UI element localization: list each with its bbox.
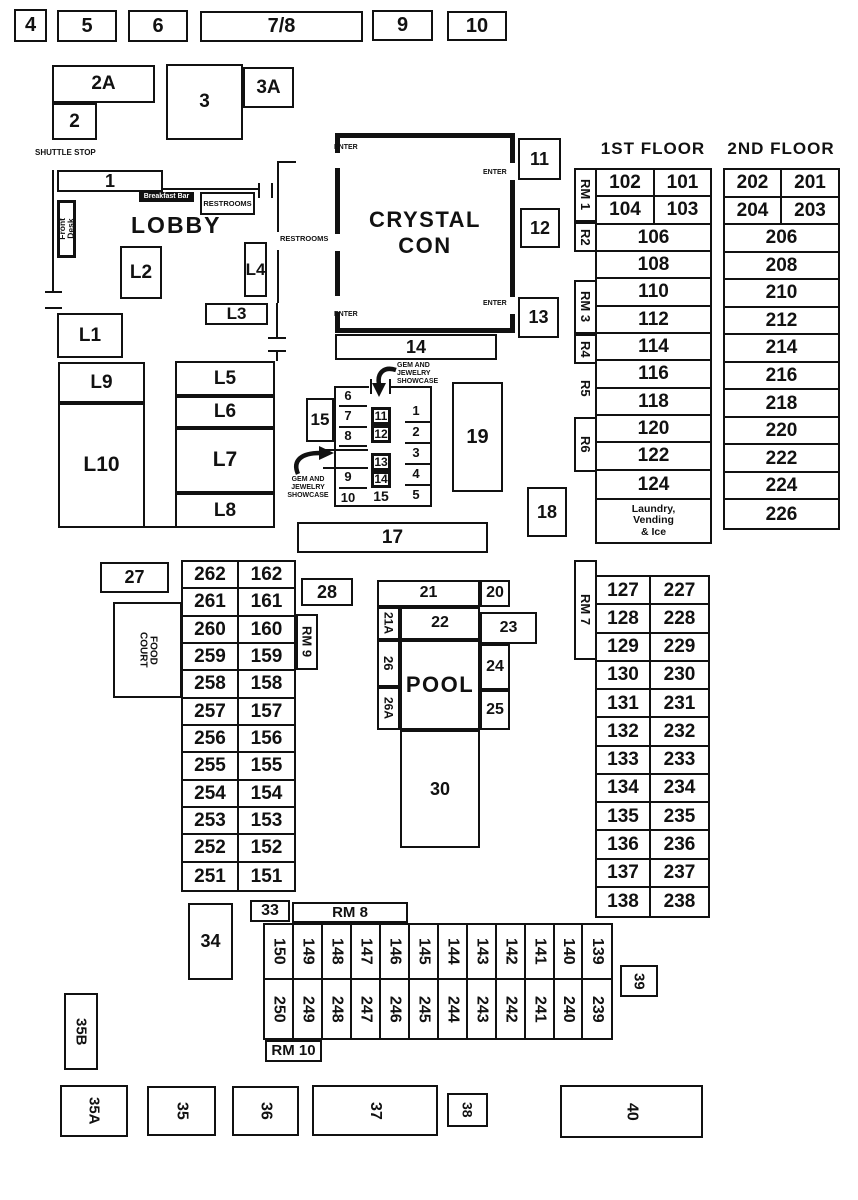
door-gap-cc-left-3 [331,296,340,312]
rooms-250s-150s-cell-258-label: 258 [194,674,226,693]
r2-label-label: R2 [579,229,592,246]
rooms-250s-150s-cell-159-label: 159 [251,647,283,666]
pool-21-label: 21 [420,585,438,602]
rooms-250s-150s-row-8: 254154 [183,781,294,808]
rm7-rooms-cell-136: 136 [597,831,651,857]
floor1-rooms-row-11: 124 [597,471,710,498]
floor2-rooms-cell-220-label: 220 [766,421,798,440]
booth-18-label: 18 [537,503,557,522]
r5-label: R5 [574,366,597,410]
rm8-rm10-rooms-cell-241: 241 [526,980,555,1038]
floor1-rooms-row-1: 104103 [597,197,710,224]
rm8-rm10-rooms-cell-141-label: 141 [532,938,548,965]
door-gap-cc-right-1 [508,163,517,180]
rm7-rooms-cell-230-label: 230 [664,665,696,684]
rm7-rooms-cell-128-label: 128 [607,609,639,628]
rm8-label: RM 8 [292,902,408,923]
pool-21a: 21A [377,607,400,640]
restrooms-corridor: RESTROOMS [280,235,328,244]
lounge-l3-label: L3 [227,305,247,323]
rooms-250s-150s-cell-262: 262 [183,562,239,587]
booth-40-label: 40 [624,1103,640,1121]
rooms-250s-150s-cell-260: 260 [183,617,239,642]
r5-label-label: R5 [579,380,592,397]
pool-26: 26 [377,640,400,687]
booth-19: 19 [452,382,503,492]
booth-10-label: 10 [466,16,488,37]
floor1-rooms-cell-110: 110 [597,279,710,304]
door-jamb-lobby-1 [258,183,260,198]
floor1-rooms-cell-104-label: 104 [609,200,641,219]
lounge-l4-label: L4 [246,261,266,279]
booth-36: 36 [232,1086,299,1136]
food-court: FOOD COURT [113,602,182,698]
booth-12: 12 [520,208,560,248]
rm7-rooms-cell-231: 231 [651,690,708,716]
wall-lounge-bottom [145,526,176,528]
rm8-rm10-rooms-cell-146-label: 146 [387,938,403,965]
rm7-label: RM 7 [574,560,597,660]
booth-2-label: 2 [69,112,80,132]
booth-12-label: 12 [530,219,550,238]
rm8-rm10-rooms-cell-147: 147 [352,925,381,978]
floor2-rooms-cell-224-label: 224 [766,476,798,495]
rm8-rm10-rooms-cell-150-label: 150 [271,938,287,965]
floor2-rooms-cell-218: 218 [725,390,838,416]
floor1-rooms-cell-103: 103 [655,197,710,222]
rm9-label-label: RM 9 [301,626,314,657]
booth-15-left-label: 15 [311,411,330,429]
r4-label-label: R4 [579,341,592,358]
rm1-label-label: RM 1 [579,179,592,210]
r6-label-label: R6 [579,436,592,453]
booth-6: 6 [128,10,188,42]
pool-23-label: 23 [500,620,518,637]
booth-37-label: 37 [367,1102,383,1120]
enter-top-left: ENTER [334,144,358,152]
lobby-label: LOBBY [131,212,222,238]
rm7-rooms-cell-129: 129 [597,634,651,660]
lounge-l7: L7 [175,428,275,493]
wall-lobby-top [163,188,259,190]
pool-20: 20 [480,580,510,607]
door-gap-showcase-top [369,384,391,390]
rm7-rooms-row-4: 131231 [597,690,708,718]
floor2-rooms-row-6: 214 [725,335,838,363]
lounge-l8: L8 [175,493,275,528]
booth-7-8-label: 7/8 [268,16,296,37]
case-box-14-label: 14 [374,473,387,486]
rooms-250s-150s-cell-252-label: 252 [194,838,226,857]
rm8-rm10-rooms-cell-148-label: 148 [329,938,345,965]
rm8-rm10-rooms-cell-246-label: 246 [387,996,403,1023]
booth-3-label: 3 [199,92,210,112]
rm7-rooms-row-1: 128228 [597,605,708,633]
pool-area: POOL [400,640,480,730]
rm7-rooms-cell-137: 137 [597,860,651,886]
floor1-rooms-cell-114: 114 [597,334,710,359]
enter-right-upper: ENTER [483,169,507,177]
rm8-rm10-rooms-cell-144-label: 144 [445,938,461,965]
rm8-rm10-rooms-cell-143-label: 143 [474,938,490,965]
rm7-rooms: 1272271282281292291302301312311322321332… [595,575,710,918]
rm7-rooms-cell-230: 230 [651,662,708,688]
rm8-rm10-rooms-cell-248: 248 [323,980,352,1038]
floor2-rooms-cell-206: 206 [725,225,838,251]
rooms-250s-150s-cell-155: 155 [239,753,294,778]
booth-4: 4 [14,9,47,42]
crystal-con-hall-label: CRYSTAL CON [369,207,481,259]
pool-24: 24 [480,644,510,690]
rm7-rooms-cell-238-label: 238 [664,892,696,911]
floor2-rooms-cell-201-label: 201 [794,173,826,192]
gem-showcase-note-top: GEM AND JEWELRY SHOWCASE [397,362,438,386]
rm7-label-label: RM 7 [579,594,592,625]
case-box-14: 14 [371,471,391,488]
rm8-rm10-rooms-cell-245-label: 245 [416,996,432,1023]
breakfast-bar: Breakfast Bar [139,192,194,202]
rm8-rm10-rooms-cell-250-label: 250 [271,996,287,1023]
floor2-header: 2ND FLOOR [721,139,841,158]
rm8-rm10-rooms-cell-140-label: 140 [560,938,576,965]
floor1-rooms-cell-112: 112 [597,307,710,332]
booth-28: 28 [301,578,353,606]
rooms-250s-150s-cell-252: 252 [183,835,239,860]
rm7-rooms-cell-234-label: 234 [664,778,696,797]
rooms-250s-150s-cell-161-label: 161 [251,592,283,611]
floor2-rooms-cell-220: 220 [725,418,838,444]
booth-19-label: 19 [466,427,488,448]
rm7-rooms-cell-233: 233 [651,747,708,773]
case-line-under-1 [405,421,432,423]
wall-l3-corridor-2 [276,352,278,361]
pool-26-label: 26 [382,656,395,670]
rooms-250s-150s-cell-253: 253 [183,808,239,833]
floor2-rooms-cell-203: 203 [782,198,838,224]
rm7-rooms-cell-227: 227 [651,577,708,603]
rooms-250s-150s-cell-262-label: 262 [194,565,226,584]
rooms-250s-150s-cell-157-label: 157 [251,702,283,721]
floor1-rooms-cell-120-label: 120 [638,419,670,438]
rm7-rooms-cell-229-label: 229 [664,637,696,656]
booth-13: 13 [518,297,559,338]
rooms-250s-150s-cell-255: 255 [183,753,239,778]
rm8-rm10-rooms-cell-147-label: 147 [358,938,374,965]
rm7-rooms-row-6: 133233 [597,747,708,775]
lounge-l3: L3 [205,303,268,325]
door-jamb-showcase-1 [370,379,372,394]
rm7-rooms-cell-237: 237 [651,860,708,886]
floor1-rooms-row-8: 118 [597,389,710,416]
floor2-rooms-cell-216: 216 [725,363,838,389]
rooms-250s-150s-row-0: 262162 [183,562,294,589]
rm7-rooms-cell-129-label: 129 [607,637,639,656]
rm8-rm10-rooms-cell-239: 239 [583,980,611,1038]
case-5: 5 [408,488,424,503]
floor2-rooms-cell-201: 201 [782,170,838,196]
rooms-250s-150s-row-9: 253153 [183,808,294,835]
floor1-rooms-row-9: 120 [597,416,710,443]
breakfast-bar-label: Breakfast Bar [144,193,190,200]
rm7-rooms-cell-228-label: 228 [664,609,696,628]
case-line-under-7 [339,426,367,428]
rm8-rm10-rooms-cell-140: 140 [555,925,583,978]
case-line-under-2 [405,442,432,444]
booth-13-label: 13 [528,308,548,327]
pool-23: 23 [480,612,537,644]
door-gap-cc-left-2 [331,234,340,251]
pool-26a-label: 26A [383,697,395,719]
booth-27: 27 [100,562,169,593]
floor1-rooms-cell-114-label: 114 [638,337,669,356]
rooms-250s-150s-cell-259-label: 259 [194,647,226,666]
floor1-rooms-cell-110-label: 110 [638,282,669,301]
rm8-rm10-rooms-cell-248-label: 248 [329,996,345,1023]
rooms-250s-150s-row-7: 255155 [183,753,294,780]
rooms-250s-150s-cell-259: 259 [183,644,239,669]
case-4: 4 [408,467,424,482]
floor1-rooms-cell-120: 120 [597,416,710,441]
floor2-rooms-cell-216-label: 216 [766,366,798,385]
rm8-rm10-rooms-cell-242-label: 242 [503,996,519,1023]
booth-34-label: 34 [200,932,220,951]
booth-27-label: 27 [124,568,144,587]
pool-26a: 26A [377,687,400,730]
lounge-l9: L9 [58,362,145,403]
floor2-rooms-cell-212-label: 212 [766,311,798,330]
lounge-l9-label: L9 [90,373,112,393]
floor2-rooms-cell-222: 222 [725,445,838,471]
rm8-rm10-rooms-cell-247-label: 247 [358,996,374,1023]
floor1-rooms-cell-101-label: 101 [667,173,699,192]
rm8-rm10-rooms-cell-145: 145 [410,925,439,978]
rm7-rooms-cell-232: 232 [651,718,708,744]
rooms-250s-150s-cell-158: 158 [239,671,294,696]
rooms-250s-150s-cell-256: 256 [183,726,239,751]
booth-5-label: 5 [81,16,92,37]
booth-33-label: 33 [261,903,279,920]
rm7-rooms-cell-238: 238 [651,888,708,916]
floor1-rooms-row-0: 102101 [597,170,710,197]
rm8-rm10-rooms-row-0: 150149148147146145144143142141140139 [265,925,611,980]
floor1-rooms-cell-108-label: 108 [638,255,670,274]
rooms-250s-150s-cell-151-label: 151 [251,867,283,886]
lounge-l1-label: L1 [79,326,101,346]
booth-11-label: 11 [530,150,549,169]
rm8-rm10-rooms-cell-139: 139 [583,925,611,978]
booth-3a: 3A [243,67,294,108]
rooms-250s-150s-cell-257-label: 257 [194,702,226,721]
rooms-250s-150s-cell-160: 160 [239,617,294,642]
rooms-250s-150s-row-4: 258158 [183,671,294,698]
rm7-rooms-cell-236-label: 236 [664,835,696,854]
floor1-rooms-cell-102-label: 102 [609,173,641,192]
door-jamb-l3-1 [268,337,286,339]
floor1-rooms-cell-108: 108 [597,252,710,277]
floor1-rooms-cell-116: 116 [597,361,710,386]
pool-22-label: 22 [431,615,449,632]
door-jamb-left-2 [45,307,62,309]
rm7-rooms-cell-232-label: 232 [664,722,696,741]
pool-20-label: 20 [486,585,504,602]
case-line-under-3 [405,463,432,465]
rm7-rooms-row-7: 134234 [597,775,708,803]
rm8-rm10-rooms-cell-244: 244 [439,980,468,1038]
booth-14-label: 14 [406,338,426,357]
case-line-under-4 [405,484,432,486]
floor1-rooms-row-7: 116 [597,361,710,388]
booth-38-label: 38 [461,1102,475,1118]
booth-34: 34 [188,903,233,980]
floor2-rooms-row-8: 218 [725,390,838,418]
rooms-250s-150s-cell-153: 153 [239,808,294,833]
rm3-label: RM 3 [574,280,597,334]
booth-39-label: 39 [632,973,647,990]
rm8-label-label: RM 8 [332,905,368,921]
rooms-250s-150s-cell-160-label: 160 [251,620,283,639]
booth-10: 10 [447,11,507,41]
rm8-rm10-rooms-cell-243: 243 [468,980,497,1038]
booth-30: 30 [400,730,480,848]
rooms-250s-150s-cell-153-label: 153 [251,811,283,830]
floor1-rooms-cell-101: 101 [655,170,710,195]
lounge-l10-label: L10 [83,454,119,476]
floor2-rooms-cell-210-label: 210 [766,283,798,302]
rm7-rooms-cell-135-label: 135 [607,807,639,826]
lounge-l1: L1 [57,313,123,358]
pool-21a-label: 21A [383,612,395,634]
booth-6-label: 6 [152,16,163,37]
booth-37: 37 [312,1085,438,1136]
lounge-l5-label: L5 [214,369,236,389]
booth-5: 5 [57,10,117,42]
front-desk: Front Desk [57,200,76,258]
booth-17-label: 17 [382,528,403,548]
enter-right-lower: ENTER [483,300,507,308]
case-box-11: 11 [371,407,391,425]
rooms-250s-150s: 2621622611612601602591592581582571572561… [181,560,296,892]
rm8-rm10-rooms-cell-149-label: 149 [300,938,316,965]
rm8-rm10-rooms-cell-143: 143 [468,925,497,978]
rm7-rooms-row-0: 127227 [597,577,708,605]
rooms-250s-150s-cell-253-label: 253 [194,811,226,830]
food-court-label: FOOD COURT [138,632,158,668]
rooms-250s-150s-row-6: 256156 [183,726,294,753]
floor2-rooms-cell-210: 210 [725,280,838,306]
front-desk-label: Front Desk [58,218,75,240]
floor1-rooms-cell-106: 106 [597,225,710,250]
rm8-rm10-rooms-cell-142: 142 [497,925,526,978]
rm7-rooms-cell-130-label: 130 [607,665,639,684]
rooms-250s-150s-row-2: 260160 [183,617,294,644]
rooms-250s-150s-row-3: 259159 [183,644,294,671]
rm8-rm10-rooms-cell-247: 247 [352,980,381,1038]
door-jamb-lobby-2 [271,183,273,198]
case-box-11-label: 11 [375,410,388,423]
rm7-rooms-cell-127-label: 127 [607,581,639,600]
rm7-rooms-cell-134: 134 [597,775,651,801]
booth-15-left: 15 [306,398,334,442]
door-gap-cc-right-2 [508,297,517,314]
floor2-rooms-row-4: 210 [725,280,838,308]
case-box-12-label: 12 [374,428,387,441]
booth-35b: 35B [64,993,98,1070]
floor2-rooms-cell-218-label: 218 [766,394,798,413]
wall-corridor-upper [277,161,279,232]
rm7-rooms-row-9: 136236 [597,831,708,859]
laundry-room: Laundry, Vending & Ice [595,498,712,544]
booth-35a: 35A [60,1085,128,1137]
rm7-rooms-cell-235-label: 235 [664,807,696,826]
rooms-250s-150s-cell-254-label: 254 [194,784,226,803]
pool-22: 22 [400,607,480,640]
rm8-rm10-rooms-row-1: 250249248247246245244243242241240239 [265,980,611,1038]
floor2-rooms-row-5: 212 [725,308,838,336]
rooms-250s-150s-cell-159: 159 [239,644,294,669]
rooms-250s-150s-cell-258: 258 [183,671,239,696]
rooms-250s-150s-cell-261-label: 261 [194,592,226,611]
rooms-250s-150s-cell-158-label: 158 [251,674,283,693]
pool-area-label: POOL [406,672,474,698]
floor1-rooms-row-2: 106 [597,225,710,252]
booth-35b-label: 35B [74,1018,89,1046]
rm8-rm10-rooms-cell-142-label: 142 [503,938,519,965]
booth-38: 38 [447,1093,488,1127]
rooms-250s-150s-cell-256-label: 256 [194,729,226,748]
booth-33: 33 [250,900,290,922]
rm7-rooms-cell-132-label: 132 [607,722,639,741]
booth-17: 17 [297,522,488,553]
booth-1: 1 [57,170,163,192]
rm8-rm10-rooms-cell-240: 240 [555,980,583,1038]
lounge-l7-label: L7 [213,449,238,471]
booth-11: 11 [518,138,561,180]
booth-4-label: 4 [25,15,36,36]
rm8-rm10-rooms-cell-150: 150 [265,925,294,978]
floor1-rooms-row-6: 114 [597,334,710,361]
pool-24-label: 24 [486,659,504,676]
rm8-rm10-rooms-cell-243-label: 243 [474,996,490,1023]
rm7-rooms-cell-227-label: 227 [664,581,696,600]
booth-36-label: 36 [258,1102,274,1120]
rm3-label-label: RM 3 [579,291,592,322]
rooms-250s-150s-cell-162: 162 [239,562,294,587]
wall-corridor-top [277,161,296,163]
rm7-rooms-cell-228: 228 [651,605,708,631]
booth-35a-label: 35A [87,1097,102,1125]
booth-39: 39 [620,965,658,997]
rooms-250s-150s-cell-162-label: 162 [251,565,283,584]
booth-18: 18 [527,487,567,537]
floor1-rooms: 1021011041031061081101121141161181201221… [595,168,712,500]
floor2-rooms-cell-204-label: 204 [737,201,769,220]
rm7-rooms-row-2: 129229 [597,634,708,662]
floor1-rooms-row-10: 122 [597,443,710,470]
floor2-rooms-row-9: 220 [725,418,838,446]
floor2-rooms-cell-202: 202 [725,170,782,196]
rooms-250s-150s-cell-260-label: 260 [194,620,226,639]
rm7-rooms-cell-236: 236 [651,831,708,857]
rm7-rooms-row-5: 132232 [597,718,708,746]
case-box-13: 13 [371,453,391,471]
rooms-250s-150s-cell-156-label: 156 [251,729,283,748]
floor2-rooms-cell-224: 224 [725,473,838,499]
rm8-rm10-rooms-cell-249-label: 249 [300,996,316,1023]
floor2-rooms-row-7: 216 [725,363,838,391]
floor2-rooms-cell-222-label: 222 [766,449,798,468]
rm7-rooms-cell-128: 128 [597,605,651,631]
rooms-250s-150s-cell-251: 251 [183,863,239,890]
